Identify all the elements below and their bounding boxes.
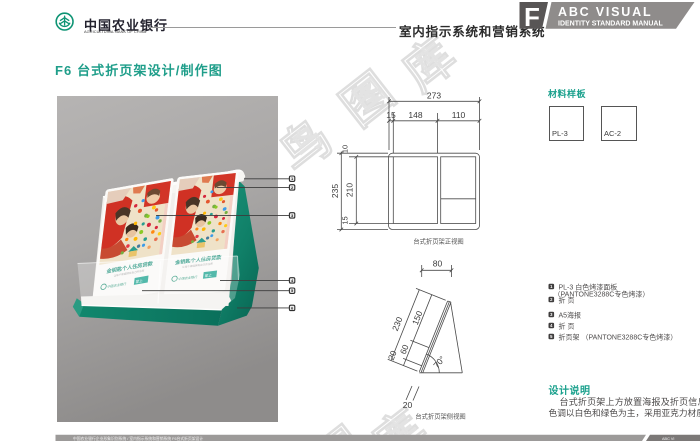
svg-text:ABC VI: ABC VI <box>662 437 674 441</box>
svg-text:中国农业银行企业形象识别系统 / 室内指示系统和营销系统: 中国农业银行企业形象识别系统 / 室内指示系统和营销系统 F6台式折页架设计 <box>73 436 203 441</box>
